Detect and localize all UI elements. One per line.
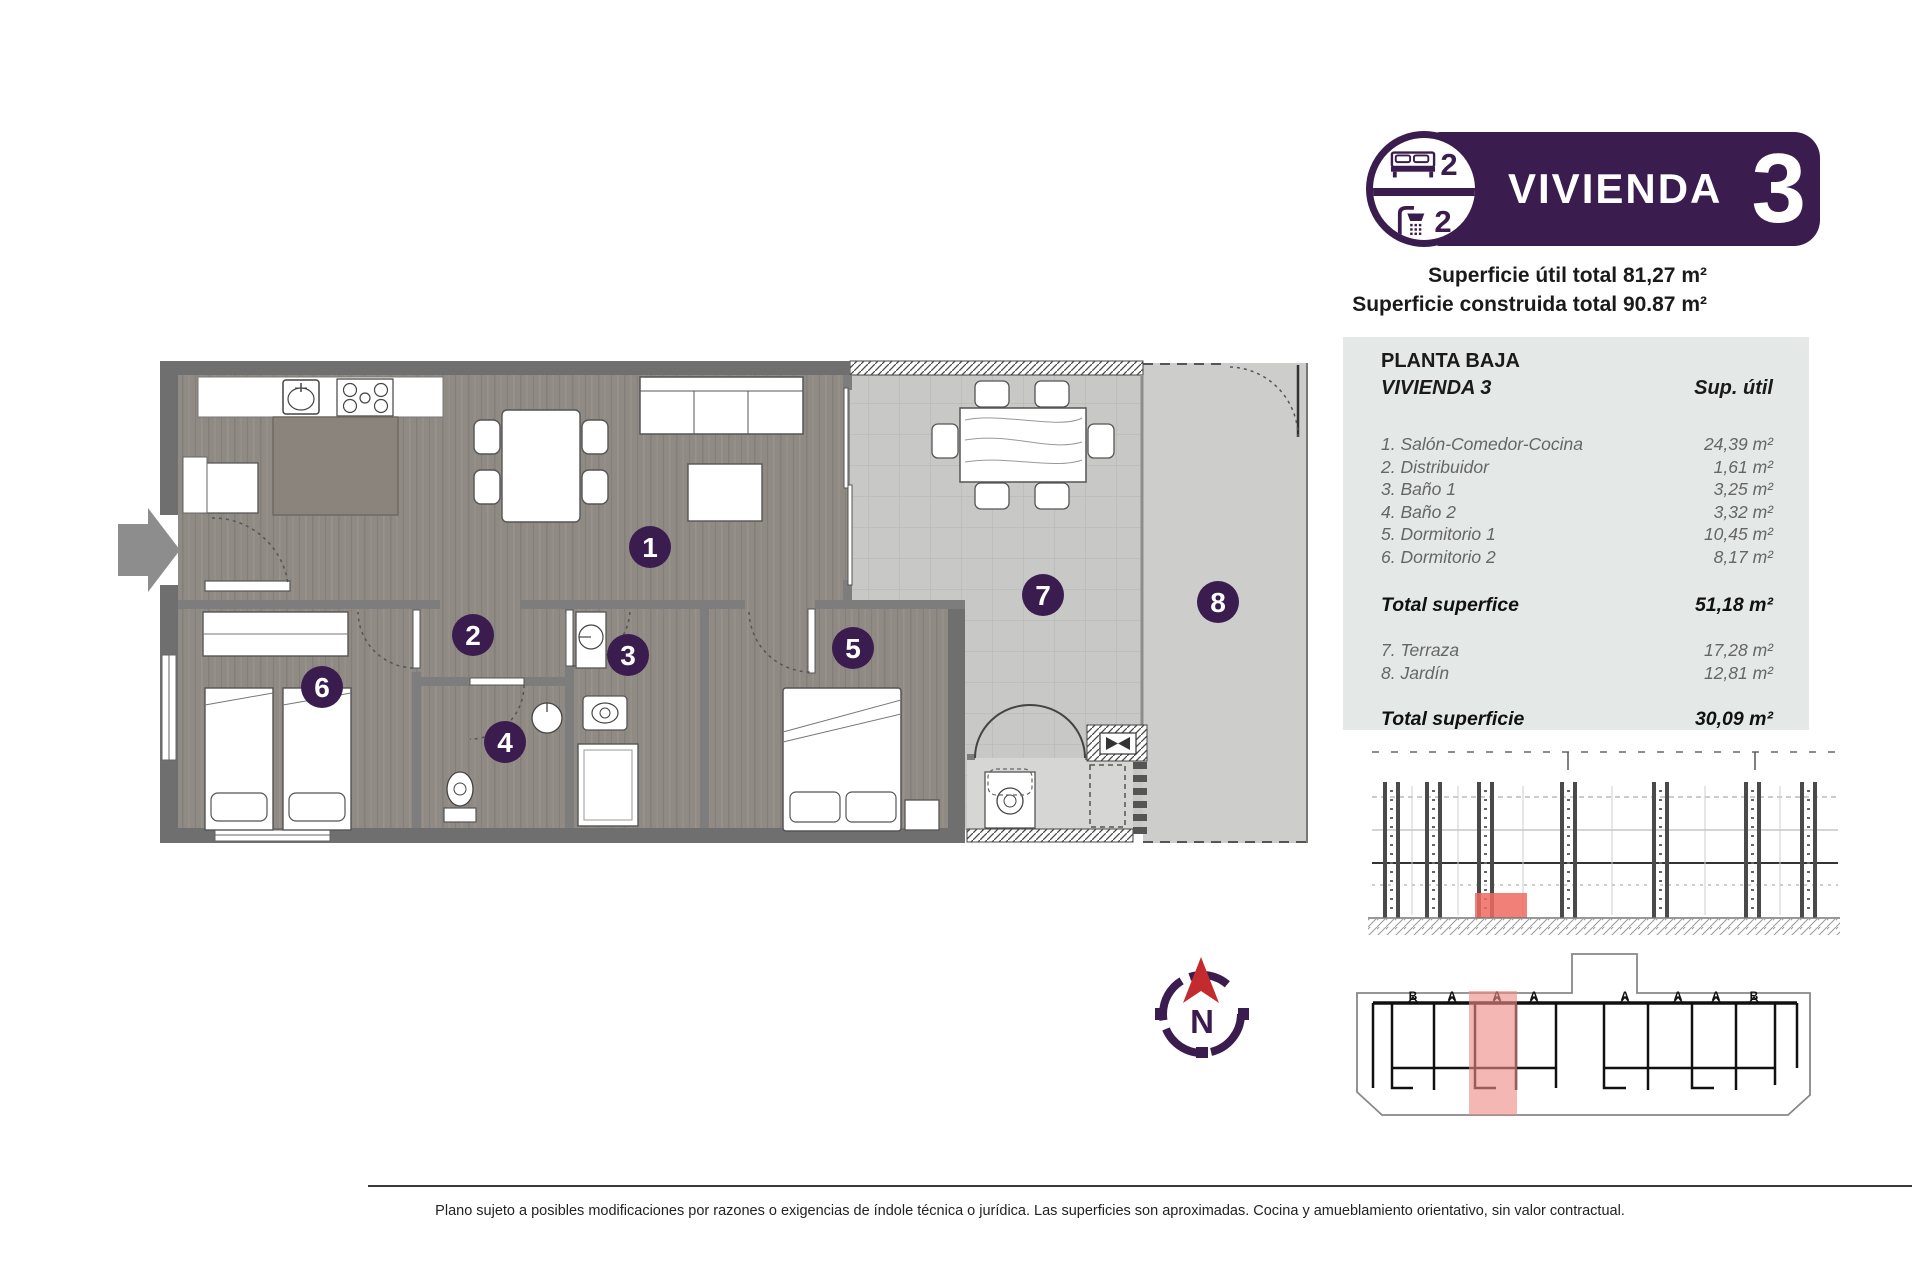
total-exterior-row: Total superficie 30,09 m² <box>1381 708 1773 731</box>
svg-text:A: A <box>1530 989 1539 1003</box>
sofa <box>640 377 803 434</box>
table-row: 8. Jardín12,81 m² <box>1381 662 1773 685</box>
svg-text:4: 4 <box>497 727 513 758</box>
fridge <box>200 463 258 513</box>
sink-icon <box>283 380 319 414</box>
svg-text:8: 8 <box>1210 587 1226 618</box>
svg-text:2: 2 <box>465 620 481 651</box>
total-areas: Superficie útil total 81,27 m² Superfici… <box>1100 261 1707 319</box>
svg-text:1: 1 <box>642 532 658 563</box>
room-badge-6: 6 <box>301 666 343 708</box>
toilet-icon <box>447 772 473 806</box>
shower-tray <box>578 744 638 826</box>
room-badge-1: 1 <box>629 526 671 568</box>
table-row: 3. Baño 13,25 m² <box>1381 478 1773 501</box>
vivienda-title: VIVIENDA <box>1508 132 1722 246</box>
pergola-hatch <box>850 361 1143 375</box>
table-subtitle: VIVIENDA 3 <box>1381 377 1491 400</box>
svg-text:A: A <box>1621 989 1630 1003</box>
hob-icon <box>337 379 393 416</box>
table-row: 6. Dormitorio 28,17 m² <box>1381 546 1773 569</box>
unit-highlight-siteplan <box>1469 991 1517 1115</box>
page: 1 2 3 4 5 6 7 8 VIVIENDA 3 2 <box>0 0 1920 1280</box>
svg-text:A: A <box>1674 989 1683 1003</box>
interior-rows: 1. Salón-Comedor-Cocina24,39 m² 2. Distr… <box>1381 433 1773 568</box>
table-row: 5. Dormitorio 110,45 m² <box>1381 523 1773 546</box>
nightstand <box>905 800 939 830</box>
table-row: 4. Baño 23,32 m² <box>1381 501 1773 524</box>
sliding-door <box>844 388 848 488</box>
compass: N <box>1148 952 1258 1070</box>
room-badge-7: 7 <box>1022 574 1064 616</box>
table-row: 7. Terraza17,28 m² <box>1381 639 1773 662</box>
svg-text:6: 6 <box>314 672 330 703</box>
footer-divider <box>368 1185 1912 1187</box>
bedroom-count: 2 <box>1440 149 1457 180</box>
room-badge-3: 3 <box>607 634 649 676</box>
rooms-count-circle: 2 2 <box>1366 131 1482 247</box>
surface-table: PLANTA BAJA VIVIENDA 3 Sup. útil 1. Saló… <box>1343 337 1809 730</box>
stair-towers <box>1383 782 1817 918</box>
room-badge-2: 2 <box>452 614 494 656</box>
coffee-table <box>688 464 762 521</box>
bathroom-count: 2 <box>1434 206 1451 237</box>
svg-text:3: 3 <box>620 640 636 671</box>
vivienda-number: 3 <box>1751 128 1806 248</box>
toilet-icon <box>592 703 618 723</box>
unit-highlight-elevation <box>1475 893 1527 918</box>
table-title: PLANTA BAJA <box>1381 349 1773 373</box>
area-construida: Superficie construida total 90.87 m² <box>1100 290 1707 319</box>
floor-plan: 1 2 3 4 5 6 7 8 <box>110 275 1320 950</box>
ground-hatch <box>1368 919 1840 935</box>
svg-text:7: 7 <box>1035 580 1051 611</box>
bed-icon <box>1390 150 1436 180</box>
svg-text:B: B <box>1409 989 1418 1003</box>
room-badge-8: 8 <box>1197 581 1239 623</box>
svg-text:A: A <box>1712 989 1721 1003</box>
shower-icon <box>1396 204 1430 240</box>
svg-text:5: 5 <box>845 633 861 664</box>
table-col-header: Sup. útil <box>1694 377 1773 400</box>
disclaimer: Plano sujeto a posibles modificaciones p… <box>140 1203 1920 1219</box>
elevation-drawing <box>1365 740 1845 940</box>
circle-divider <box>1373 188 1475 196</box>
total-interior-row: Total superfice 51,18 m² <box>1381 594 1773 617</box>
svg-text:B: B <box>1750 989 1759 1003</box>
north-label: N <box>1190 1003 1214 1040</box>
room-badge-4: 4 <box>484 721 526 763</box>
table-row: 2. Distribuidor1,61 m² <box>1381 456 1773 479</box>
siteplan-outline <box>1357 954 1810 1115</box>
table-row: 1. Salón-Comedor-Cocina24,39 m² <box>1381 433 1773 456</box>
room-badge-5: 5 <box>832 627 874 669</box>
area-util: Superficie útil total 81,27 m² <box>1100 261 1707 290</box>
siteplan-drawing: B A A A A A A B <box>1348 945 1818 1120</box>
vivienda-badge: VIVIENDA 3 <box>1430 132 1820 246</box>
kitchen-island <box>273 417 398 515</box>
cabinet <box>183 457 207 513</box>
svg-text:A: A <box>1448 989 1457 1003</box>
exterior-rows: 7. Terraza17,28 m² 8. Jardín12,81 m² <box>1381 639 1773 684</box>
